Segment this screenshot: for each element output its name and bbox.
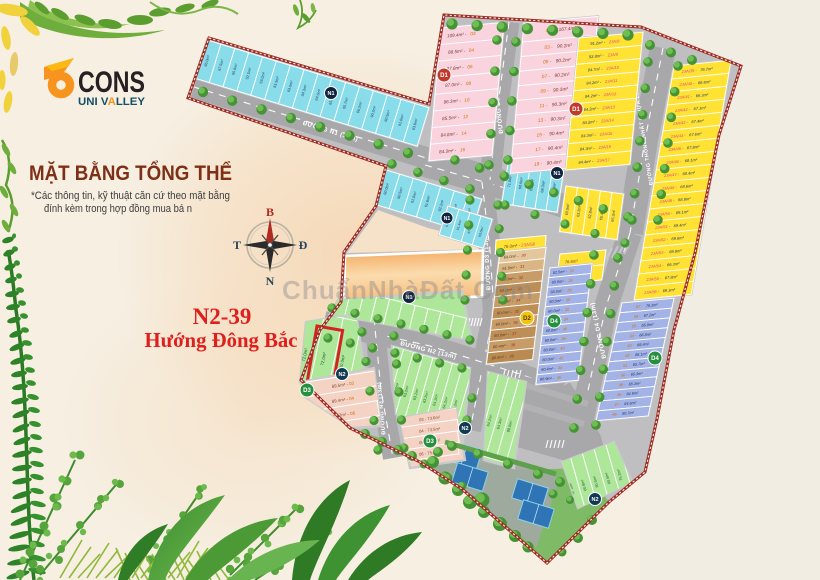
svg-text:23A/8: 23A/8 xyxy=(609,38,621,44)
svg-text:16: 16 xyxy=(460,147,466,152)
svg-text:N2-39: N2-39 xyxy=(193,304,252,329)
svg-text:đính kèm trong hợp đồng mua bá: đính kèm trong hợp đồng mua bá n xyxy=(44,203,192,215)
svg-text:D1: D1 xyxy=(572,107,580,113)
svg-text:D4: D4 xyxy=(550,319,558,325)
svg-text:26: 26 xyxy=(568,279,573,283)
svg-text:40: 40 xyxy=(560,346,565,350)
svg-text:D1: D1 xyxy=(440,73,448,79)
svg-text:03 -: 03 - xyxy=(544,44,553,51)
svg-text:CONS: CONS xyxy=(78,66,145,99)
svg-text:17 -: 17 - xyxy=(535,147,544,154)
svg-text:23A/9: 23A/9 xyxy=(607,52,619,58)
svg-text:10: 10 xyxy=(464,97,470,102)
svg-text:07 -: 07 - xyxy=(542,74,551,81)
svg-text:N2: N2 xyxy=(338,372,345,378)
svg-text:15 -: 15 - xyxy=(536,132,545,139)
svg-text:03: 03 xyxy=(470,31,476,36)
svg-text:D3: D3 xyxy=(426,439,434,445)
svg-text:Hướng Đông Bắc: Hướng Đông Bắc xyxy=(145,328,298,352)
svg-text:04: 04 xyxy=(469,47,475,52)
svg-text:14: 14 xyxy=(461,130,467,135)
svg-text:N2: N2 xyxy=(591,497,598,503)
svg-text:N1: N1 xyxy=(553,171,560,177)
svg-text:Đ: Đ xyxy=(299,238,308,252)
svg-text:12: 12 xyxy=(463,114,469,119)
svg-text:N1: N1 xyxy=(444,216,451,222)
svg-text:06: 06 xyxy=(467,64,473,69)
svg-text:46: 46 xyxy=(557,376,562,380)
svg-text:42: 42 xyxy=(559,356,564,360)
svg-text:MẶT BẰNG TỔNG THỂ: MẶT BẰNG TỔNG THỂ xyxy=(29,160,232,185)
svg-text:11 -: 11 - xyxy=(539,103,548,110)
svg-text:13 -: 13 - xyxy=(538,117,547,124)
svg-text:32: 32 xyxy=(565,308,570,312)
svg-text:05 -: 05 - xyxy=(543,59,552,66)
svg-text:N: N xyxy=(266,274,275,288)
svg-text:09 -: 09 - xyxy=(540,88,549,95)
svg-text:19 -: 19 - xyxy=(534,161,543,168)
svg-text:36: 36 xyxy=(562,327,567,331)
svg-text:N2: N2 xyxy=(461,426,468,432)
svg-text:D2: D2 xyxy=(523,316,531,322)
svg-text:T: T xyxy=(233,238,241,252)
svg-text:D3: D3 xyxy=(303,388,311,394)
svg-text:28: 28 xyxy=(567,288,572,292)
svg-text:N1: N1 xyxy=(327,91,334,97)
svg-text:UNI VALLEY: UNI VALLEY xyxy=(78,96,146,108)
svg-text:D4: D4 xyxy=(651,356,659,362)
svg-text:08: 08 xyxy=(466,81,472,86)
svg-text:38: 38 xyxy=(561,337,566,341)
svg-text:ChuẩnNhàĐất.Com: ChuẩnNhàĐất.Com xyxy=(282,275,534,305)
svg-text:*Các thông tin, kỹ thuật căn c: *Các thông tin, kỹ thuật căn cứ theo mặt… xyxy=(31,189,230,202)
svg-text:B: B xyxy=(266,205,274,219)
svg-text:30: 30 xyxy=(566,298,571,302)
